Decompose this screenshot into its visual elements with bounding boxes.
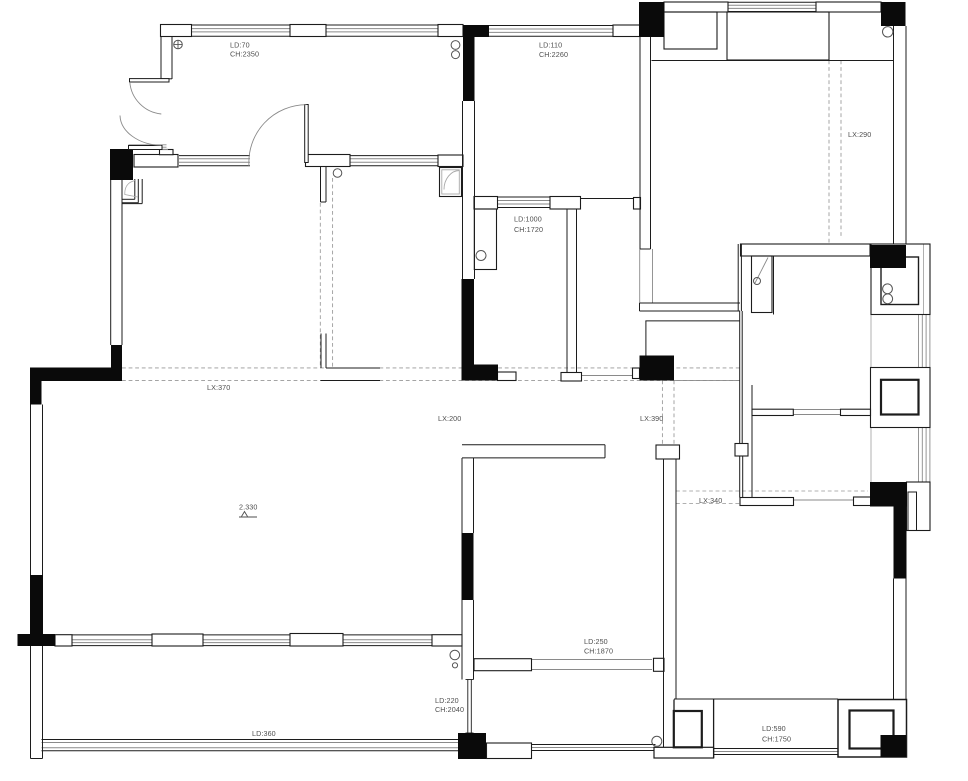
svg-text:CH:2040: CH:2040 <box>435 705 464 714</box>
svg-text:LD:1000: LD:1000 <box>514 215 542 224</box>
svg-text:2.330: 2.330 <box>239 503 258 512</box>
svg-text:LX:200: LX:200 <box>438 414 461 423</box>
svg-text:LD:110: LD:110 <box>539 41 562 50</box>
svg-text:LX:340: LX:340 <box>699 496 722 505</box>
svg-text:CH:1870: CH:1870 <box>584 647 613 656</box>
svg-text:LX:290: LX:290 <box>848 130 871 139</box>
svg-text:CH:1750: CH:1750 <box>762 735 791 744</box>
svg-text:CH:2260: CH:2260 <box>539 50 568 59</box>
svg-text:LD:360: LD:360 <box>252 729 276 738</box>
svg-text:CH:2350: CH:2350 <box>230 50 259 59</box>
svg-text:LD:590: LD:590 <box>762 724 786 733</box>
svg-text:CH:1720: CH:1720 <box>514 225 543 234</box>
svg-text:LX:390: LX:390 <box>640 414 663 423</box>
svg-text:LX:370: LX:370 <box>207 383 230 392</box>
svg-text:LD:70: LD:70 <box>230 41 250 50</box>
svg-text:LD:250: LD:250 <box>584 637 608 646</box>
svg-text:LD:220: LD:220 <box>435 696 459 705</box>
